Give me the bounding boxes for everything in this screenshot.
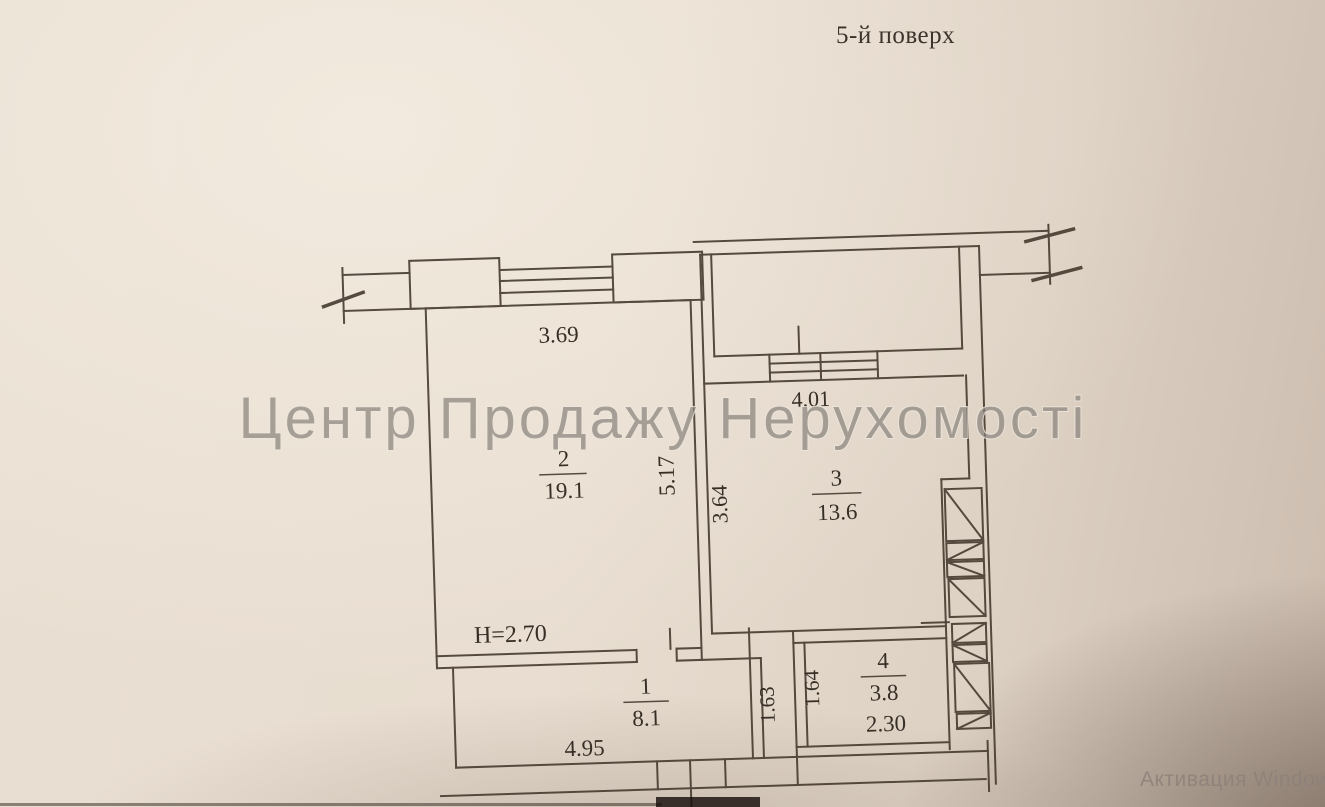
windows-activation-watermark: Активация Windows <box>1140 768 1325 792</box>
agency-watermark: Центр Продажу Нерухомості <box>239 386 1088 451</box>
floorplan-photo: 5-й поверх <box>0 0 1325 807</box>
agency-watermark-layer: Центр Продажу Нерухомості <box>0 0 1325 807</box>
photo-bottom-edge-line <box>0 803 662 806</box>
photo-bottom-dark-bar <box>656 797 760 807</box>
